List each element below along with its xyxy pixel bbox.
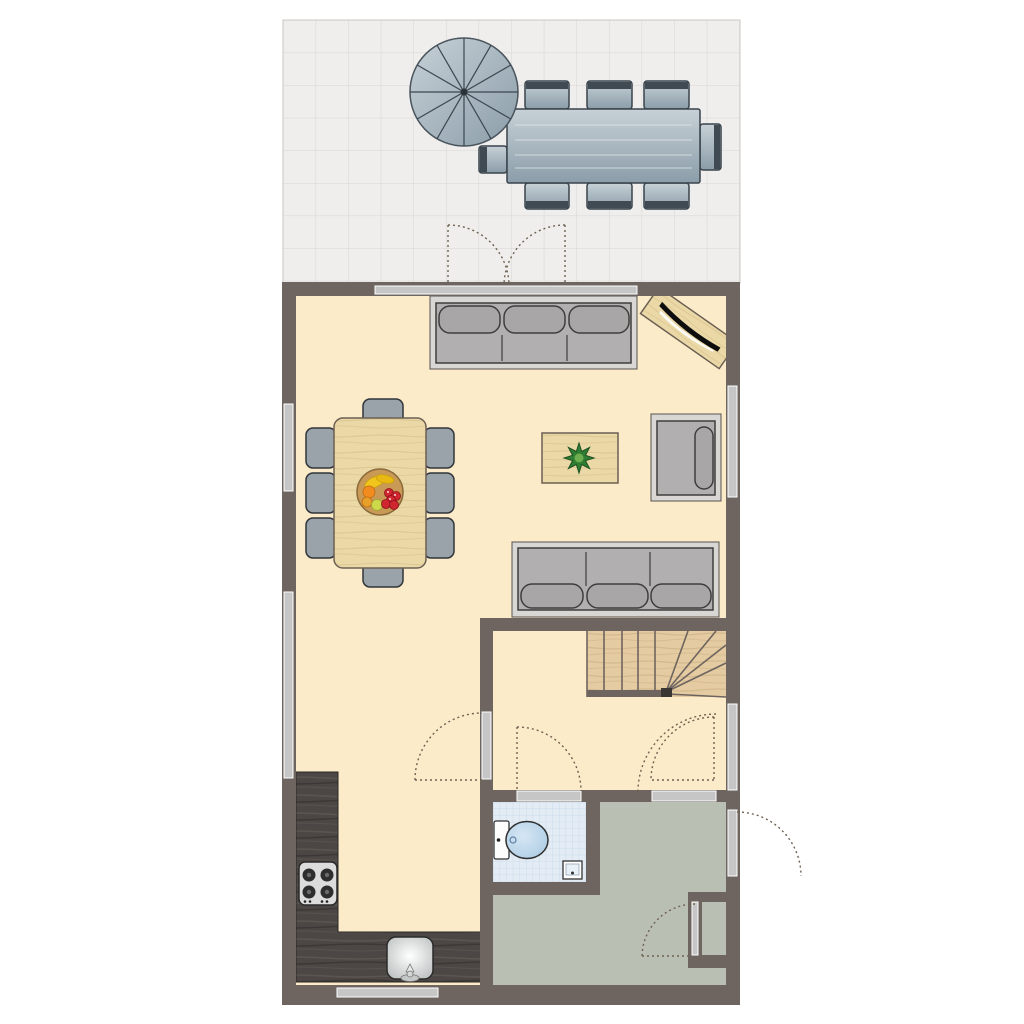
closet-door-leaf: [692, 902, 698, 955]
outdoor-chair: [700, 124, 721, 170]
sliding-glass-door: [375, 286, 637, 294]
window-left-1: [284, 404, 293, 491]
stair-newel: [661, 688, 672, 697]
floorplan: [0, 0, 1024, 1024]
outdoor-chair: [525, 183, 569, 209]
outdoor-chair: [587, 183, 632, 209]
cooktop: [299, 862, 337, 905]
outdoor-chair: [479, 146, 507, 173]
staircase: [587, 631, 726, 697]
potted-plant: [564, 443, 594, 473]
outdoor-dining-table: [507, 109, 700, 183]
toilet: [494, 821, 548, 859]
parasol-pole: [461, 89, 468, 96]
window-bottom: [337, 988, 438, 997]
window-right-1: [728, 386, 737, 497]
threshold-bathroom: [517, 791, 581, 801]
terrace: [283, 20, 740, 286]
entrance-hall-floor: [493, 895, 600, 985]
threshold-living-hall: [482, 712, 491, 779]
sofa-top: [430, 296, 637, 369]
outdoor-chair: [644, 81, 689, 109]
floorplan-drawing: [0, 0, 1024, 1024]
outdoor-chair: [644, 183, 689, 209]
storage-closet: [688, 892, 740, 968]
kitchen-sink: [387, 937, 433, 982]
threshold-entrance: [652, 791, 716, 801]
outdoor-chair: [587, 81, 632, 109]
fruit-bowl: [357, 469, 403, 515]
front-door-leaf: [728, 810, 737, 876]
parasol: [410, 38, 518, 146]
outdoor-chair: [525, 81, 569, 109]
window-left-2: [284, 592, 293, 778]
armchair: [651, 414, 721, 501]
window-right-2: [728, 704, 737, 790]
sofa-bottom: [512, 542, 719, 617]
front-door-arc: [737, 812, 801, 876]
bathroom-washbasin: [563, 861, 582, 879]
